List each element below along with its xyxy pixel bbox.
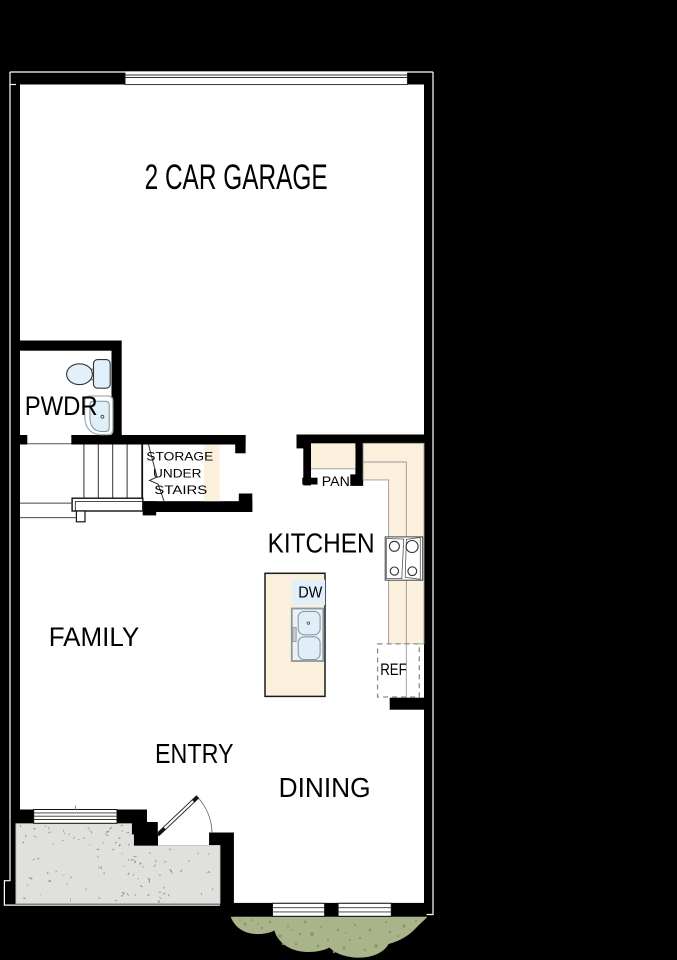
svg-text:STAIRS: STAIRS	[154, 483, 207, 497]
svg-text:PAN: PAN	[322, 473, 350, 489]
svg-text:UNDER: UNDER	[153, 467, 202, 481]
svg-text:DW: DW	[298, 585, 323, 602]
svg-text:ENTRY: ENTRY	[155, 738, 234, 769]
svg-text:KITCHEN: KITCHEN	[268, 528, 375, 559]
svg-text:PWDR: PWDR	[25, 391, 98, 421]
svg-text:REF: REF	[380, 660, 407, 679]
svg-text:FAMILY: FAMILY	[49, 621, 140, 652]
svg-text:STORAGE: STORAGE	[146, 449, 213, 463]
svg-text:2 CAR GARAGE: 2 CAR GARAGE	[145, 158, 328, 197]
svg-text:DINING: DINING	[279, 772, 371, 803]
